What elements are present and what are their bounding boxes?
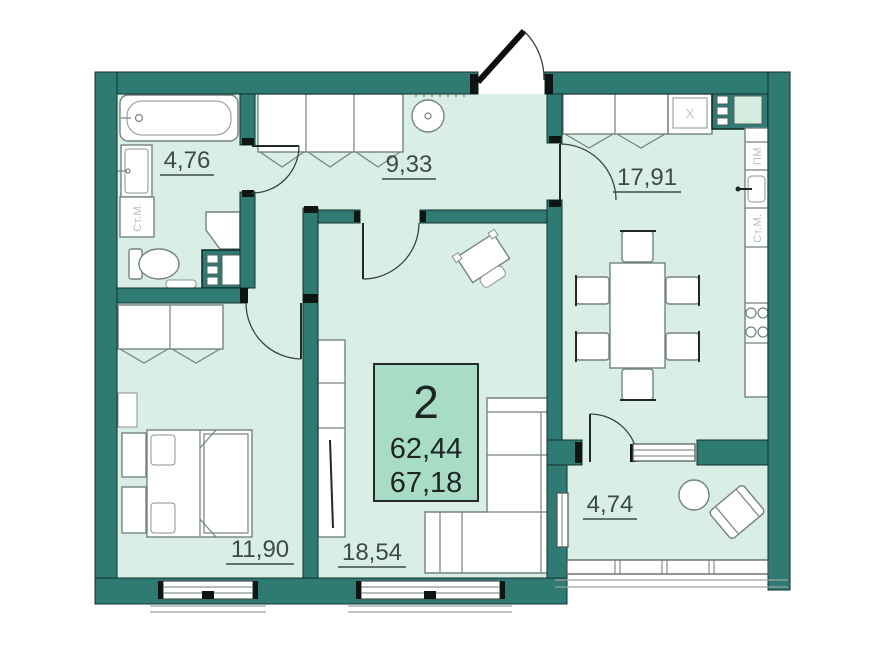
wall-top-right bbox=[545, 72, 790, 94]
nightstand bbox=[122, 487, 146, 533]
wall-kitchen-bottom-right bbox=[697, 440, 768, 465]
bedroom-window bbox=[150, 581, 266, 612]
wall-kitchen-divider-upper bbox=[547, 94, 562, 143]
pillow bbox=[151, 503, 175, 533]
chair bbox=[622, 369, 653, 400]
unit-rooms-count: 2 bbox=[413, 376, 439, 428]
chair bbox=[622, 231, 653, 262]
chair bbox=[666, 333, 699, 360]
wall-bathroom-bottom bbox=[117, 288, 247, 303]
dresser bbox=[118, 393, 137, 427]
floor-plan-canvas: 2 62,44 67,18 bbox=[0, 0, 886, 670]
unit-living-area: 62,44 bbox=[390, 433, 463, 465]
entrance-door bbox=[478, 31, 544, 82]
chair bbox=[576, 333, 609, 360]
room-area-label-bathroom: 4,76 bbox=[164, 147, 211, 174]
wall-left bbox=[95, 72, 117, 604]
toilet-bowl bbox=[139, 249, 179, 279]
label-washer-kitchen: Ст.М. bbox=[752, 213, 764, 243]
balcony-table bbox=[679, 480, 709, 510]
hallway-wardrobe bbox=[258, 94, 403, 152]
chair bbox=[576, 277, 609, 304]
bathroom-sink-basin bbox=[125, 149, 148, 193]
wall-hall-living-right bbox=[420, 210, 547, 223]
pillow bbox=[151, 435, 175, 465]
double-bed bbox=[147, 430, 252, 537]
cabinet-drawer bbox=[207, 266, 218, 274]
pouf bbox=[412, 100, 444, 132]
label-washer-bath: Ст.М. bbox=[132, 202, 144, 232]
label-dishwasher: ПМ bbox=[752, 147, 764, 165]
counter bbox=[745, 128, 768, 397]
unit-label-box: 2 62,44 67,18 bbox=[374, 364, 478, 501]
living-room-window bbox=[348, 581, 512, 612]
balcony-side-window bbox=[557, 493, 568, 547]
oven-unit bbox=[712, 92, 768, 129]
faucet-knob bbox=[736, 187, 741, 192]
wall-top-left bbox=[95, 72, 478, 94]
label-fridge: Х bbox=[686, 106, 695, 121]
unit-total-area: 67,18 bbox=[390, 467, 463, 499]
chair bbox=[666, 277, 699, 304]
cabinet-drawer bbox=[207, 277, 218, 285]
wall-hall-living-left bbox=[318, 210, 360, 223]
room-area-label-balcony: 4,74 bbox=[587, 491, 634, 518]
kitchen-balcony-window bbox=[633, 444, 695, 461]
room-area-label-kitchen: 17,91 bbox=[617, 164, 677, 191]
outside-below-balcony bbox=[567, 560, 790, 670]
dining-table bbox=[610, 263, 665, 368]
room-area-label-hallway: 9,33 bbox=[386, 151, 433, 178]
wall-bedroom-living-divider bbox=[303, 208, 318, 578]
floor-plan-page: 2 62,44 67,18 bbox=[0, 0, 886, 670]
room-area-label-bedroom: 11,90 bbox=[231, 536, 289, 563]
wall-bathroom-right-lower bbox=[240, 192, 255, 288]
wall-right bbox=[768, 72, 790, 590]
nightstand bbox=[122, 433, 146, 477]
wall-bathroom-right-upper bbox=[240, 94, 255, 145]
cabinet-drawer bbox=[207, 255, 218, 263]
room-area-label-living: 18,54 bbox=[342, 539, 402, 566]
bath-mat bbox=[166, 280, 196, 288]
